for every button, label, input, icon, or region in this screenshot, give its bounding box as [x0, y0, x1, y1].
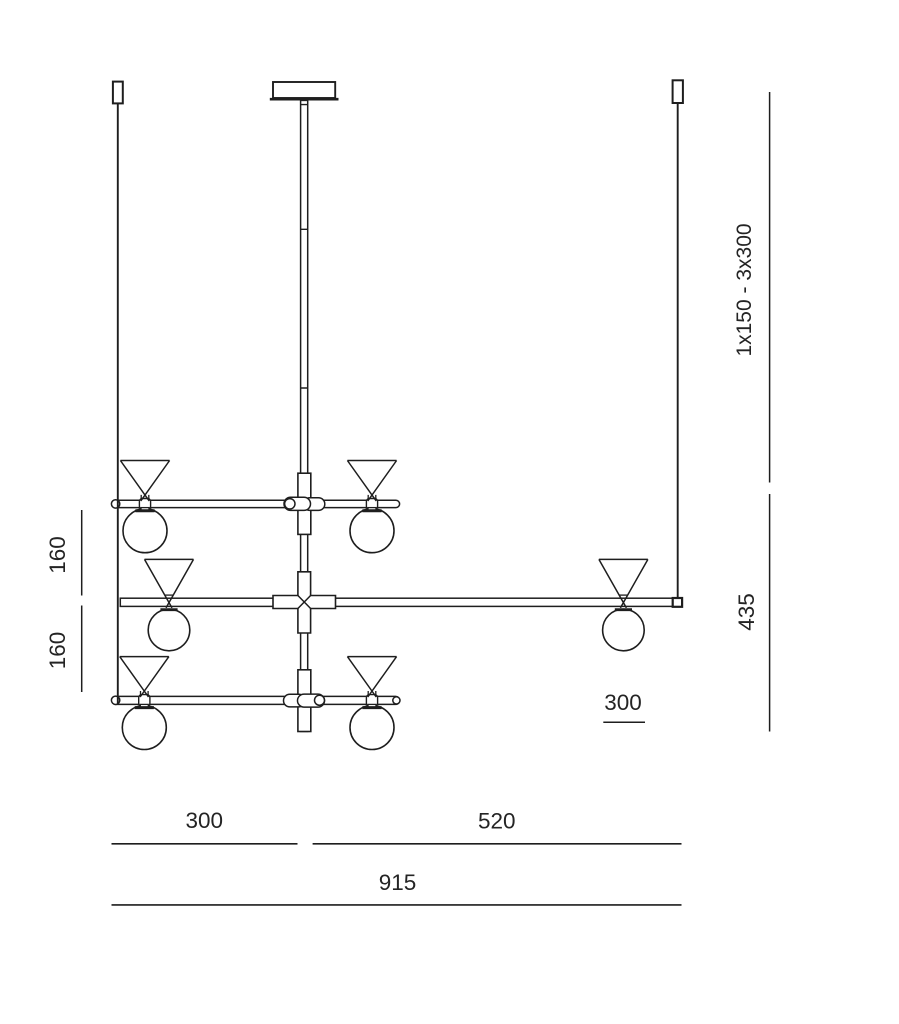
- svg-text:160: 160: [45, 632, 70, 670]
- svg-text:520: 520: [478, 809, 516, 834]
- svg-text:300: 300: [604, 690, 642, 715]
- svg-text:1x150 - 3x300: 1x150 - 3x300: [733, 223, 756, 356]
- svg-text:915: 915: [379, 870, 417, 895]
- svg-text:300: 300: [186, 808, 224, 833]
- svg-text:160: 160: [45, 536, 70, 574]
- svg-text:435: 435: [734, 593, 759, 631]
